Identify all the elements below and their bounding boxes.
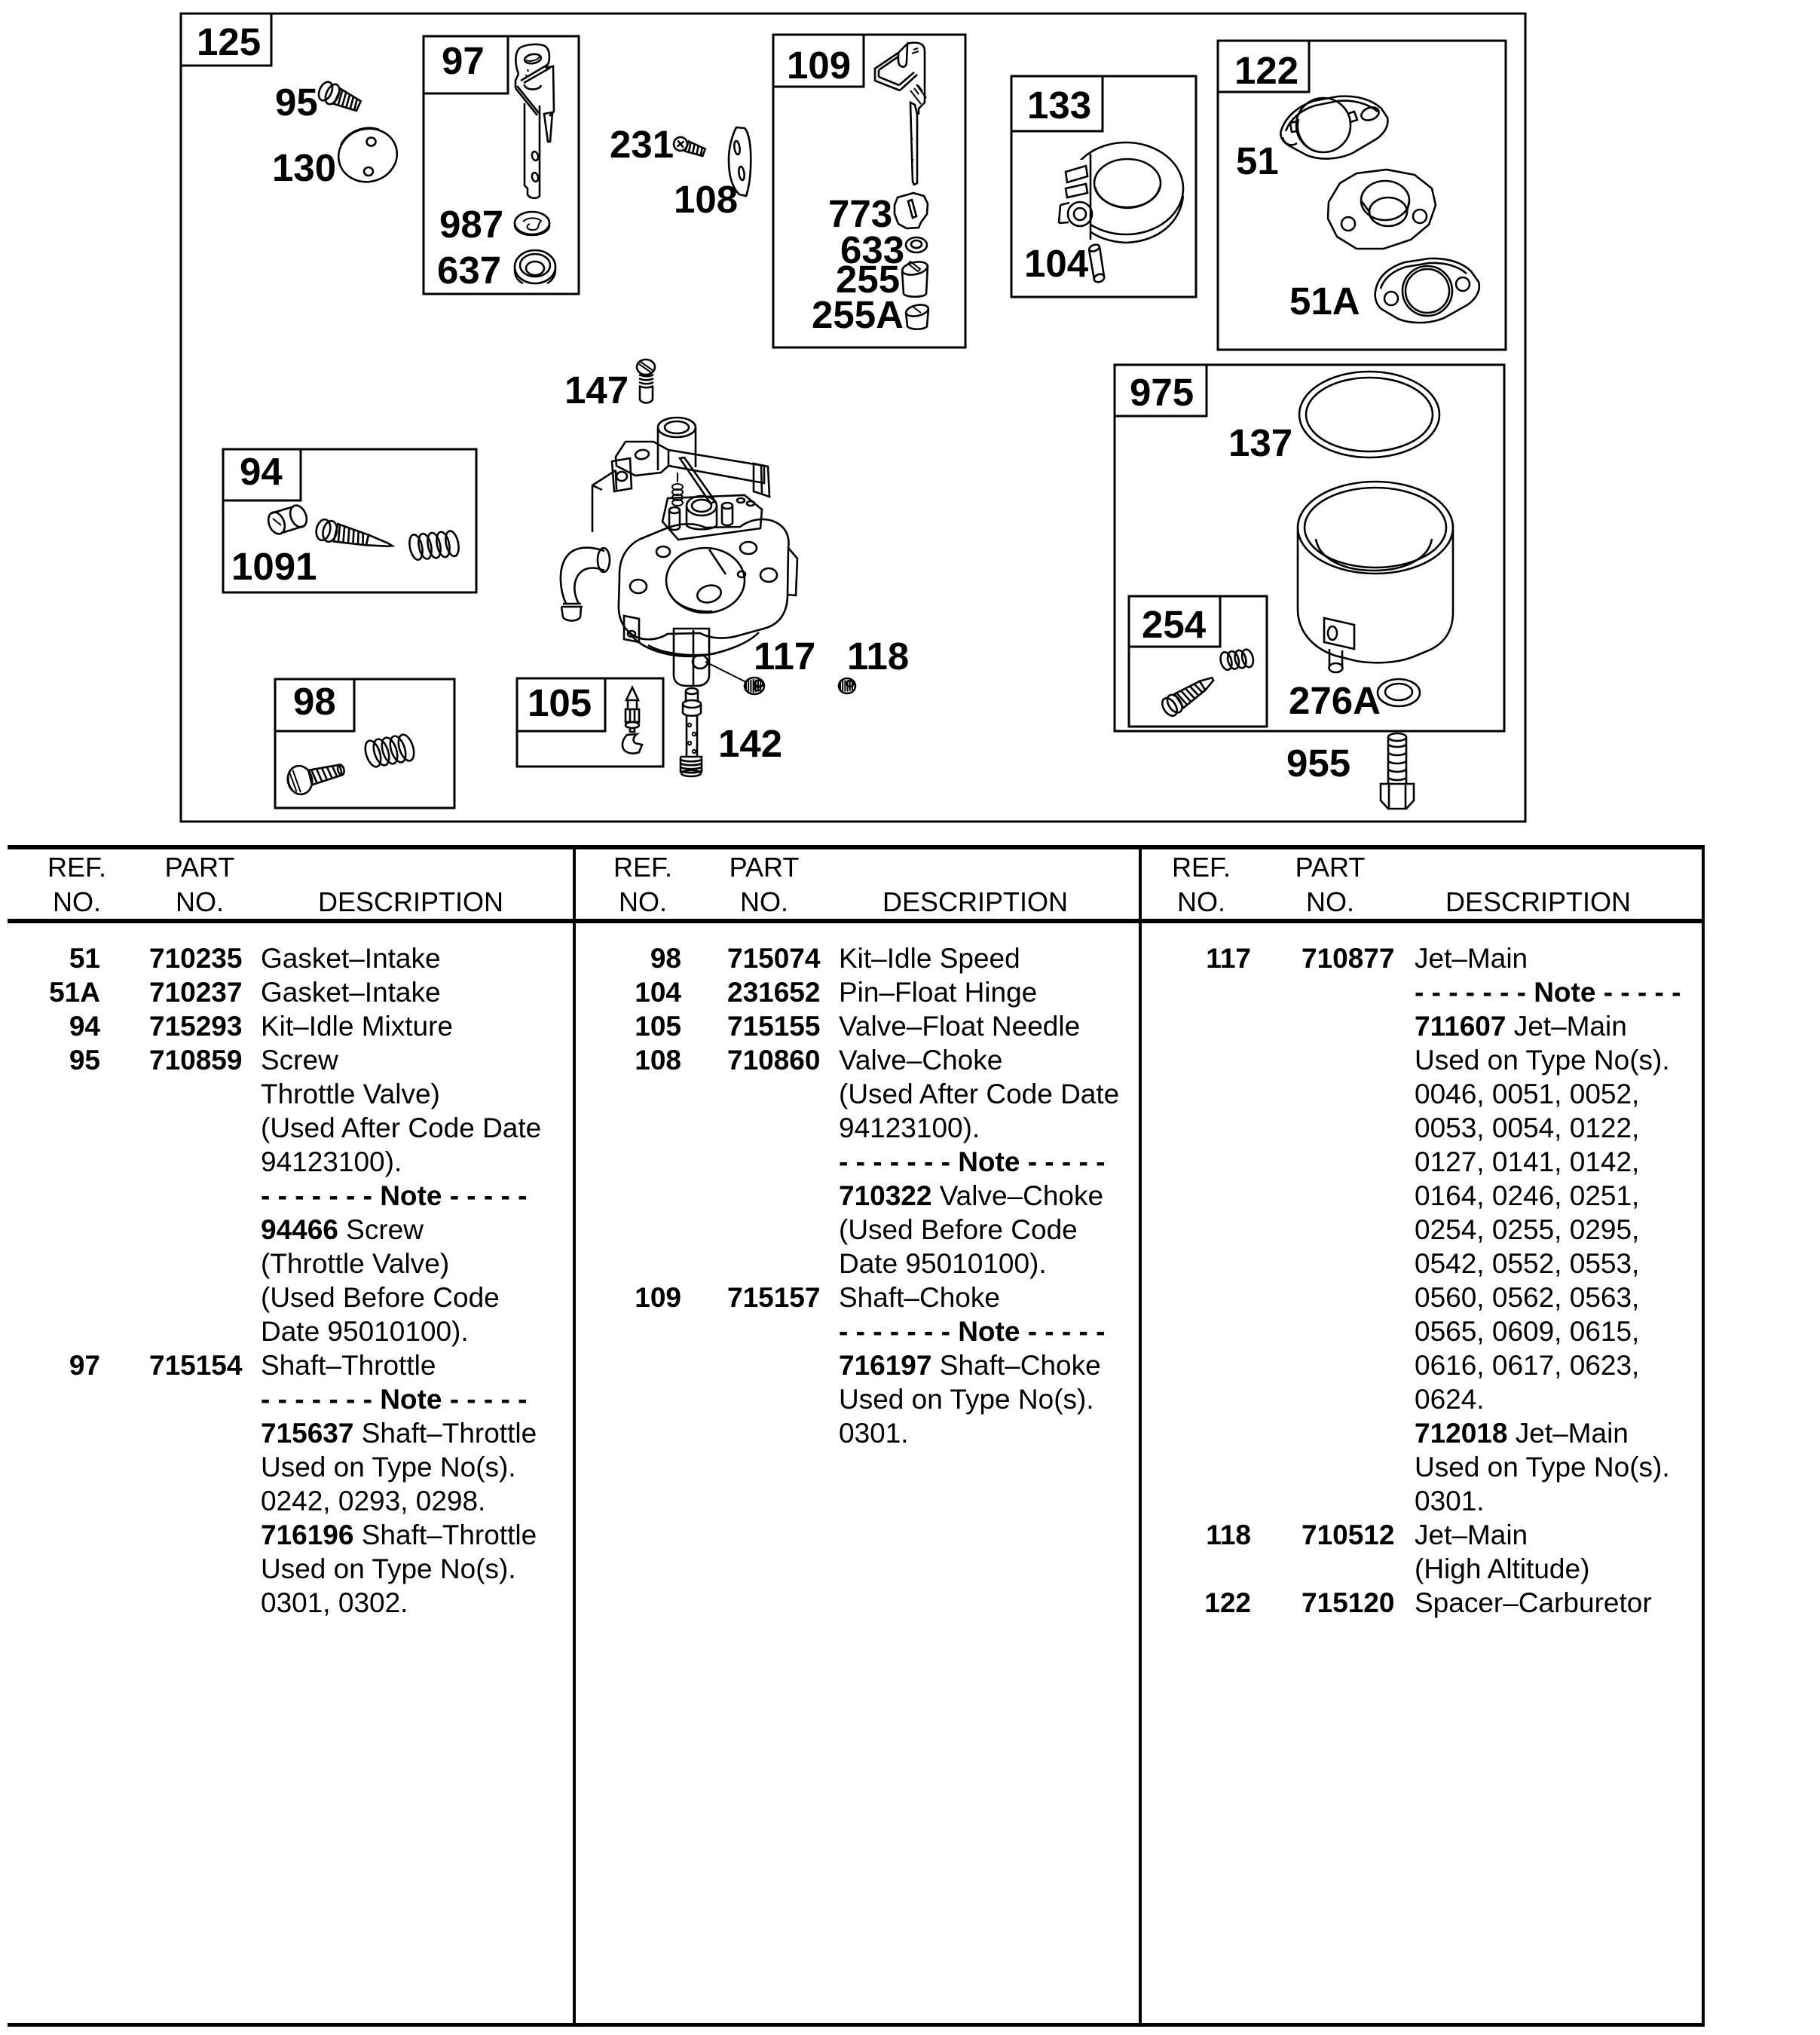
svg-text:715293: 715293 (149, 1011, 242, 1042)
svg-text:0301, 0302.: 0301, 0302. (261, 1587, 408, 1618)
svg-text:130: 130 (272, 146, 336, 189)
svg-text:118: 118 (847, 635, 909, 678)
svg-text:Used on Type No(s).: Used on Type No(s). (261, 1553, 516, 1584)
svg-text:51A: 51A (49, 977, 100, 1008)
svg-text:711607 Jet–Main: 711607 Jet–Main (1415, 1011, 1627, 1042)
svg-text:PART: PART (730, 852, 800, 883)
svg-text:51A: 51A (1289, 280, 1360, 323)
svg-text:0046, 0051, 0052,: 0046, 0051, 0052, (1415, 1079, 1639, 1109)
svg-text:104: 104 (635, 977, 681, 1008)
svg-text:51: 51 (1236, 139, 1279, 182)
svg-text:710859: 710859 (149, 1045, 242, 1076)
svg-text:231652: 231652 (727, 977, 820, 1008)
svg-text:0127, 0141, 0142,: 0127, 0141, 0142, (1415, 1146, 1639, 1177)
svg-text:DESCRIPTION: DESCRIPTION (1445, 886, 1631, 917)
svg-text:(Used Before Code: (Used Before Code (839, 1214, 1078, 1245)
svg-text:- - - - - - - Note - - - - -: - - - - - - - Note - - - - - (261, 1384, 527, 1415)
svg-text:(Used After Code Date: (Used After Code Date (839, 1079, 1119, 1109)
svg-text:Valve–Choke: Valve–Choke (839, 1045, 1002, 1076)
svg-text:142: 142 (718, 722, 782, 765)
svg-text:0616, 0617, 0623,: 0616, 0617, 0623, (1415, 1350, 1639, 1381)
svg-text:NO.: NO. (1177, 886, 1225, 917)
svg-text:122: 122 (1204, 1587, 1251, 1618)
svg-text:715157: 715157 (727, 1282, 820, 1313)
svg-text:117: 117 (754, 635, 815, 678)
svg-text:Gasket–Intake: Gasket–Intake (261, 977, 441, 1008)
svg-text:105: 105 (528, 681, 592, 724)
svg-text:DESCRIPTION: DESCRIPTION (318, 886, 503, 917)
svg-text:710860: 710860 (727, 1045, 820, 1076)
svg-text:255A: 255A (812, 293, 904, 336)
svg-text:NO.: NO. (619, 886, 667, 917)
svg-text:(Used Before Code: (Used Before Code (261, 1282, 500, 1313)
svg-text:118: 118 (1206, 1519, 1251, 1550)
svg-text:0301.: 0301. (839, 1418, 909, 1449)
svg-text:0560, 0562, 0563,: 0560, 0562, 0563, (1415, 1282, 1639, 1313)
svg-text:Valve–Float Needle: Valve–Float Needle (839, 1011, 1080, 1042)
svg-text:- - - - - - - Note - - - - -: - - - - - - - Note - - - - - (839, 1146, 1105, 1177)
svg-text:0565, 0609, 0615,: 0565, 0609, 0615, (1415, 1316, 1639, 1347)
svg-text:147: 147 (564, 369, 629, 412)
svg-text:- - - - - - - Note - - - - -: - - - - - - - Note - - - - - (261, 1180, 527, 1211)
svg-text:NO.: NO. (740, 886, 788, 917)
svg-text:PART: PART (1295, 852, 1366, 883)
svg-text:Jet–Main: Jet–Main (1415, 943, 1528, 974)
svg-text:94: 94 (69, 1011, 101, 1042)
svg-text:716197 Shaft–Choke: 716197 Shaft–Choke (839, 1350, 1101, 1381)
svg-text:109: 109 (787, 44, 851, 87)
svg-text:(Used After Code Date: (Used After Code Date (261, 1112, 541, 1143)
svg-text:REF.: REF. (1172, 852, 1231, 883)
svg-text:1091: 1091 (231, 545, 317, 588)
svg-text:- - - - - - - Note - - - - -: - - - - - - - Note - - - - - (1415, 977, 1681, 1008)
svg-text:Date 95010100).: Date 95010100). (261, 1316, 469, 1347)
svg-text:231: 231 (610, 123, 674, 166)
svg-text:0164, 0246, 0251,: 0164, 0246, 0251, (1415, 1180, 1639, 1211)
svg-text:710235: 710235 (149, 943, 242, 974)
svg-text:0624.: 0624. (1415, 1384, 1485, 1415)
svg-text:109: 109 (635, 1282, 681, 1313)
svg-text:Used on Type No(s).: Used on Type No(s). (261, 1452, 516, 1483)
svg-text:715637 Shaft–Throttle: 715637 Shaft–Throttle (261, 1418, 537, 1449)
svg-text:94123100).: 94123100). (839, 1112, 980, 1143)
svg-text:712018 Jet–Main: 712018 Jet–Main (1415, 1418, 1629, 1449)
svg-text:94466 Screw: 94466 Screw (261, 1214, 424, 1245)
svg-text:975: 975 (1130, 371, 1194, 414)
svg-text:97: 97 (442, 39, 485, 82)
svg-text:276A: 276A (1289, 679, 1381, 722)
svg-text:94: 94 (240, 450, 283, 493)
svg-text:254: 254 (1142, 603, 1207, 646)
svg-text:98: 98 (293, 680, 336, 723)
svg-text:710322 Valve–Choke: 710322 Valve–Choke (839, 1180, 1103, 1211)
svg-text:108: 108 (674, 178, 738, 221)
svg-text:98: 98 (650, 943, 681, 974)
svg-text:108: 108 (635, 1045, 681, 1076)
svg-text:97: 97 (69, 1350, 100, 1381)
svg-text:Kit–Idle Speed: Kit–Idle Speed (839, 943, 1020, 974)
svg-text:Jet–Main: Jet–Main (1415, 1519, 1528, 1550)
svg-text:NO.: NO. (53, 886, 101, 917)
svg-text:Kit–Idle Mixture: Kit–Idle Mixture (261, 1011, 453, 1042)
svg-text:710877: 710877 (1302, 943, 1394, 974)
svg-text:95: 95 (69, 1045, 100, 1076)
svg-text:105: 105 (635, 1011, 681, 1042)
svg-text:PART: PART (165, 852, 235, 883)
svg-text:Shaft–Choke: Shaft–Choke (839, 1282, 1000, 1313)
svg-text:0542, 0552, 0553,: 0542, 0552, 0553, (1415, 1248, 1639, 1279)
svg-text:Used on Type No(s).: Used on Type No(s). (839, 1384, 1094, 1415)
svg-text:94123100).: 94123100). (261, 1146, 402, 1177)
svg-text:95: 95 (275, 81, 318, 124)
svg-text:Date 95010100).: Date 95010100). (839, 1248, 1047, 1279)
svg-text:104: 104 (1024, 242, 1089, 285)
svg-text:0242, 0293, 0298.: 0242, 0293, 0298. (261, 1486, 485, 1516)
svg-text:- - - - - - - Note - - - - -: - - - - - - - Note - - - - - (839, 1316, 1105, 1347)
svg-text:Used on Type No(s).: Used on Type No(s). (1415, 1452, 1670, 1483)
svg-text:Pin–Float Hinge: Pin–Float Hinge (839, 977, 1037, 1008)
svg-text:REF.: REF. (47, 852, 106, 883)
svg-text:NO.: NO. (176, 886, 224, 917)
svg-text:NO.: NO. (1306, 886, 1354, 917)
svg-text:Screw: Screw (261, 1045, 338, 1076)
svg-text:0053, 0054, 0122,: 0053, 0054, 0122, (1415, 1112, 1639, 1143)
svg-text:715074: 715074 (727, 943, 821, 974)
svg-text:51: 51 (69, 943, 100, 974)
svg-text:117: 117 (1206, 943, 1251, 974)
svg-text:0254, 0255, 0295,: 0254, 0255, 0295, (1415, 1214, 1639, 1245)
svg-text:716196 Shaft–Throttle: 716196 Shaft–Throttle (261, 1519, 537, 1550)
svg-text:REF.: REF. (613, 852, 672, 883)
svg-text:DESCRIPTION: DESCRIPTION (882, 886, 1068, 917)
svg-text:125: 125 (197, 20, 261, 63)
svg-text:Used on Type No(s).: Used on Type No(s). (1415, 1045, 1670, 1076)
svg-text:Spacer–Carburetor: Spacer–Carburetor (1415, 1587, 1652, 1618)
svg-text:137: 137 (1228, 421, 1292, 464)
svg-text:Shaft–Throttle: Shaft–Throttle (261, 1350, 436, 1381)
svg-text:715120: 715120 (1302, 1587, 1394, 1618)
svg-text:133: 133 (1027, 84, 1091, 127)
svg-text:715155: 715155 (727, 1011, 820, 1042)
svg-text:710512: 710512 (1302, 1519, 1394, 1550)
svg-text:637: 637 (437, 249, 501, 292)
svg-text:710237: 710237 (149, 977, 242, 1008)
svg-text:122: 122 (1234, 49, 1298, 92)
svg-text:0301.: 0301. (1415, 1486, 1485, 1516)
svg-text:715154: 715154 (149, 1350, 243, 1381)
svg-text:955: 955 (1286, 742, 1350, 785)
svg-text:(Throttle Valve): (Throttle Valve) (261, 1248, 449, 1279)
svg-text:Throttle Valve): Throttle Valve) (261, 1079, 440, 1109)
svg-text:(High Altitude): (High Altitude) (1415, 1553, 1589, 1584)
svg-text:987: 987 (439, 203, 503, 246)
svg-text:Gasket–Intake: Gasket–Intake (261, 943, 441, 974)
